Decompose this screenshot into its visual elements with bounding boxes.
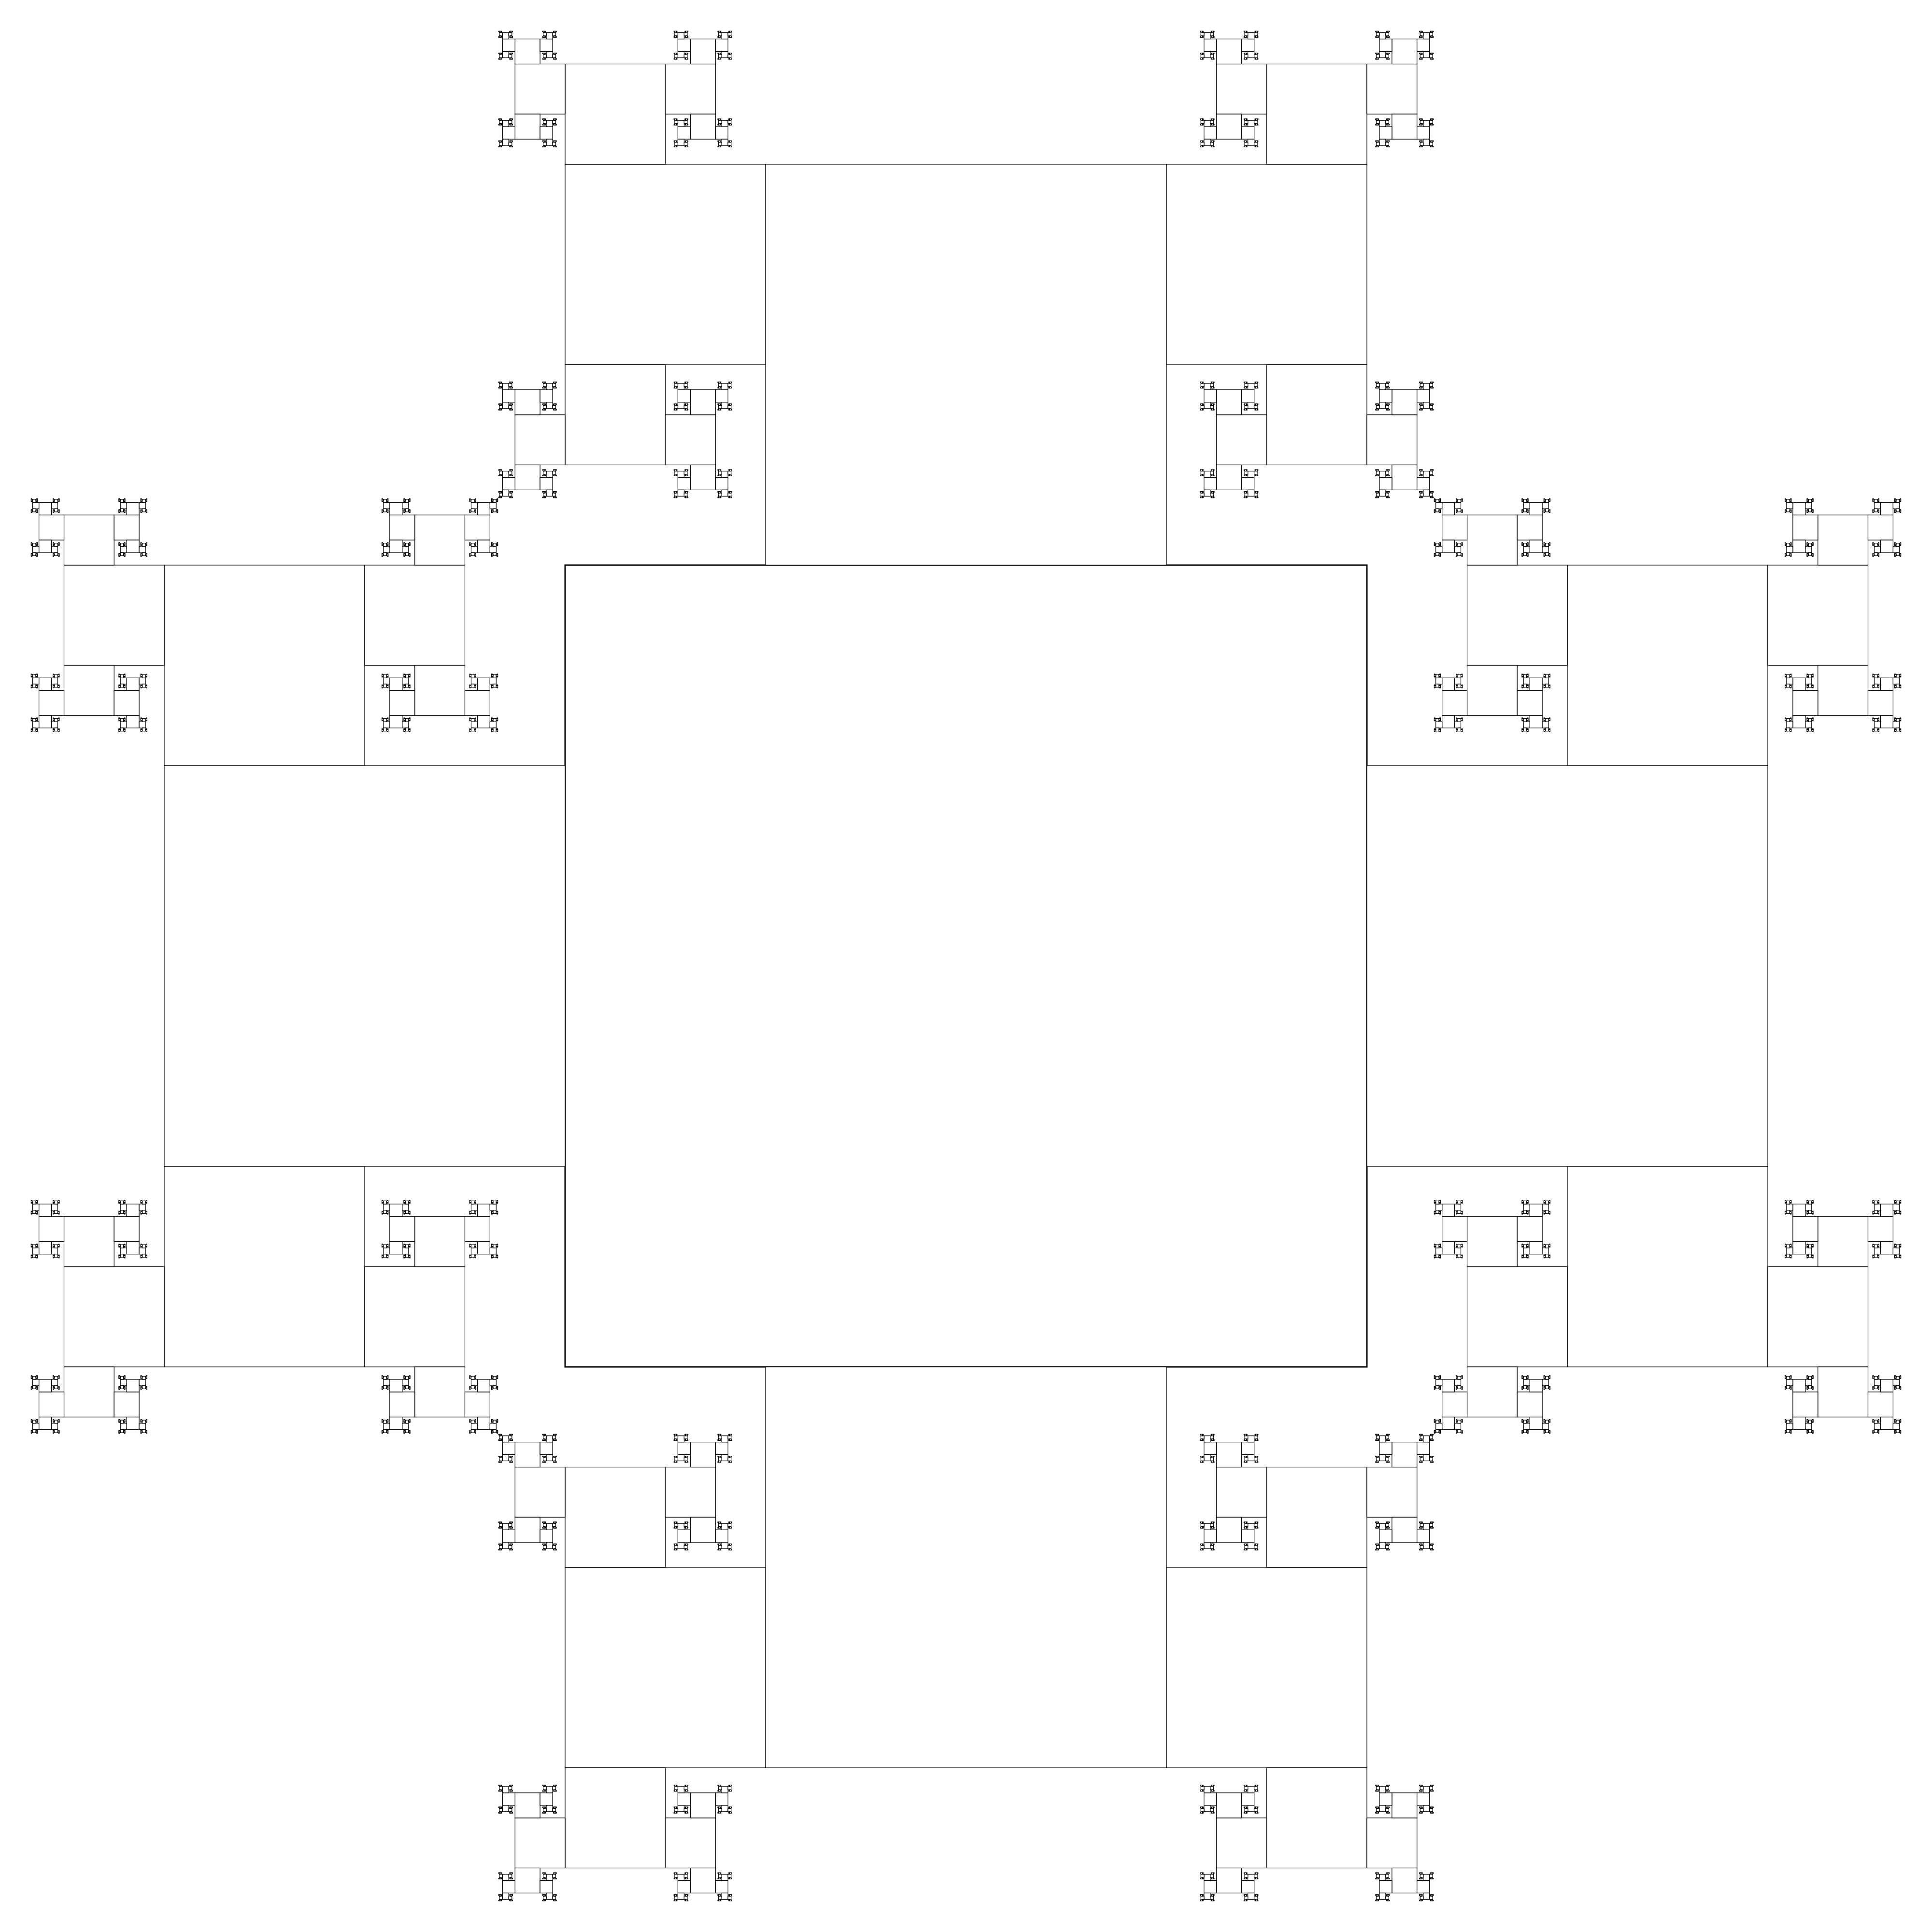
- fractal-square: [1807, 674, 1808, 675]
- fractal-square: [1201, 1896, 1204, 1899]
- fractal-square: [53, 554, 54, 554]
- fractal-square: [387, 718, 388, 719]
- fractal-square: [1211, 1527, 1212, 1528]
- fractal-square: [674, 1456, 675, 1457]
- fractal-square: [1878, 718, 1879, 719]
- fractal-square: [1523, 1201, 1526, 1204]
- fractal-square: [497, 1389, 498, 1390]
- fractal-square: [409, 542, 410, 543]
- fractal-square: [1379, 1542, 1386, 1548]
- fractal-square: [512, 1456, 513, 1457]
- fractal-square: [501, 1873, 502, 1874]
- fractal-square: [1878, 554, 1879, 554]
- fractal-square: [545, 1900, 546, 1901]
- fractal-square: [475, 1430, 476, 1431]
- fractal-square: [1544, 676, 1545, 677]
- fractal-square: [146, 1203, 147, 1204]
- fractal-square: [1544, 1376, 1545, 1377]
- fractal-square: [402, 1248, 409, 1254]
- fractal-square: [384, 719, 386, 722]
- fractal-square: [687, 382, 688, 383]
- fractal-square: [498, 1873, 499, 1874]
- fractal-square: [1787, 1376, 1790, 1379]
- fractal-square: [1389, 1900, 1390, 1901]
- fractal-square: [387, 720, 388, 721]
- fractal-square: [53, 1203, 54, 1204]
- fractal-square: [1895, 1378, 1896, 1379]
- fractal-square: [1433, 1527, 1434, 1528]
- fractal-square: [1423, 52, 1430, 58]
- fractal-square: [382, 676, 383, 677]
- fractal-square: [497, 554, 498, 554]
- fractal-square: [1878, 1255, 1879, 1256]
- fractal-square: [1456, 676, 1457, 677]
- fractal-square: [1248, 120, 1254, 127]
- fractal-square: [1387, 119, 1388, 120]
- fractal-square: [146, 731, 147, 732]
- fractal-square: [164, 1166, 365, 1367]
- fractal-square: [545, 382, 546, 383]
- fractal-square: [1808, 1386, 1811, 1389]
- fractal-square: [1387, 1544, 1388, 1545]
- fractal-square: [1378, 1549, 1379, 1550]
- fractal-square: [146, 510, 147, 511]
- fractal-square: [119, 1246, 120, 1247]
- fractal-square: [684, 1787, 687, 1790]
- fractal-square: [512, 1785, 513, 1786]
- fractal-square: [1204, 1542, 1210, 1548]
- fractal-square: [675, 1896, 678, 1899]
- fractal-square: [1204, 120, 1210, 127]
- fractal-square: [687, 37, 688, 38]
- fractal-square: [1387, 409, 1388, 410]
- fractal-square: [1421, 382, 1422, 383]
- fractal-square: [1436, 1430, 1439, 1433]
- fractal-square: [55, 509, 57, 511]
- fractal-square: [1386, 142, 1389, 145]
- fractal-square: [471, 1423, 477, 1430]
- fractal-square: [31, 542, 32, 543]
- fractal-square: [409, 501, 410, 502]
- fractal-square: [384, 553, 386, 555]
- fractal-square: [1542, 546, 1548, 553]
- fractal-square: [498, 387, 499, 388]
- fractal-square: [554, 1549, 554, 1550]
- fractal-square: [1203, 404, 1204, 405]
- fractal-square: [1462, 720, 1463, 721]
- fractal-square: [685, 1440, 686, 1441]
- fractal-square: [1812, 731, 1813, 732]
- fractal-square: [1200, 409, 1201, 410]
- fractal-square: [676, 469, 677, 470]
- fractal-square: [1420, 382, 1421, 383]
- fractal-square: [540, 39, 553, 52]
- fractal-square: [499, 493, 502, 496]
- fractal-square: [1896, 1376, 1899, 1379]
- fractal-square: [1386, 55, 1389, 57]
- fractal-square: [556, 1544, 557, 1545]
- fractal-square: [1442, 1217, 1467, 1242]
- fractal-square: [1203, 58, 1204, 59]
- fractal-square: [409, 1389, 410, 1390]
- fractal-square: [1430, 53, 1431, 54]
- fractal-square: [1787, 553, 1790, 555]
- fractal-square: [469, 1257, 470, 1258]
- fractal-square: [390, 1242, 402, 1254]
- fractal-square: [1255, 146, 1256, 147]
- fractal-square: [382, 512, 383, 513]
- fractal-square: [142, 728, 145, 731]
- fractal-square: [509, 1546, 511, 1548]
- fractal-square: [685, 1544, 686, 1545]
- fractal-square: [1456, 731, 1457, 732]
- fractal-square: [501, 119, 502, 120]
- fractal-square: [1517, 1392, 1542, 1417]
- fractal-square: [502, 1442, 515, 1455]
- fractal-square: [1245, 1787, 1248, 1790]
- fractal-square: [475, 512, 476, 513]
- fractal-square: [731, 1462, 732, 1463]
- fractal-square: [1201, 55, 1204, 57]
- fractal-square: [384, 684, 386, 687]
- fractal-square: [512, 1807, 513, 1808]
- fractal-square: [1213, 404, 1214, 405]
- fractal-square: [409, 1244, 410, 1245]
- fractal-square: [1456, 554, 1457, 554]
- fractal-square: [141, 729, 142, 730]
- fractal-square: [1378, 1434, 1379, 1435]
- fractal-square: [492, 1387, 493, 1388]
- fractal-square: [142, 1210, 145, 1213]
- fractal-square: [542, 1522, 543, 1523]
- fractal-square: [497, 1203, 498, 1204]
- fractal-square: [1793, 540, 1805, 553]
- fractal-square: [141, 1387, 142, 1388]
- fractal-square: [502, 1523, 509, 1530]
- fractal-square: [1210, 1787, 1213, 1790]
- fractal-square: [1246, 1807, 1247, 1808]
- fractal-square: [1213, 1878, 1214, 1879]
- fractal-square: [475, 1200, 476, 1201]
- fractal-square: [556, 119, 557, 120]
- fractal-square: [142, 684, 145, 687]
- fractal-square: [676, 146, 677, 147]
- fractal-square: [1204, 1442, 1217, 1455]
- fractal-square: [509, 405, 511, 408]
- fractal-square: [127, 540, 139, 553]
- fractal-square: [556, 1873, 557, 1874]
- fractal-square: [1430, 1462, 1431, 1463]
- fractal-square: [119, 1200, 120, 1201]
- fractal-square: [1456, 1421, 1457, 1422]
- fractal-square: [124, 498, 125, 499]
- fractal-square: [546, 52, 553, 58]
- fractal-square: [1522, 1389, 1523, 1390]
- fractal-square: [33, 509, 36, 511]
- fractal-square: [1423, 1787, 1430, 1793]
- fractal-square: [546, 1523, 553, 1530]
- fractal-square: [1254, 384, 1257, 386]
- fractal-square: [1433, 31, 1434, 32]
- fractal-square: [1546, 553, 1548, 555]
- fractal-square: [1217, 415, 1267, 465]
- fractal-square: [1213, 1462, 1214, 1463]
- fractal-square: [64, 666, 114, 716]
- fractal-square: [1255, 1434, 1256, 1435]
- fractal-square: [720, 119, 721, 120]
- fractal-square: [1527, 1244, 1528, 1245]
- fractal-square: [384, 728, 386, 731]
- fractal-square: [719, 471, 722, 474]
- fractal-square: [387, 1433, 388, 1434]
- fractal-square: [1379, 1880, 1392, 1893]
- fractal-square: [720, 1785, 721, 1786]
- fractal-square: [405, 1386, 408, 1389]
- fractal-square: [58, 1257, 59, 1258]
- fractal-square: [1436, 722, 1442, 728]
- fractal-square: [127, 715, 139, 728]
- fractal-square: [1248, 1436, 1254, 1442]
- fractal-square: [1430, 1896, 1433, 1899]
- fractal-square: [728, 384, 731, 386]
- fractal-square: [1203, 37, 1204, 38]
- fractal-square: [1873, 1433, 1874, 1434]
- fractal-square: [1430, 405, 1433, 408]
- fractal-square: [675, 384, 678, 386]
- fractal-square: [502, 471, 509, 477]
- fractal-square: [127, 1417, 139, 1430]
- fractal-square: [1544, 1246, 1545, 1247]
- fractal-square: [1896, 553, 1899, 555]
- fractal-square: [676, 1873, 677, 1874]
- fractal-square: [1462, 501, 1463, 502]
- fractal-square: [720, 58, 721, 59]
- fractal-square: [1544, 729, 1545, 730]
- fractal-square: [1367, 1467, 1417, 1518]
- fractal-square: [1392, 39, 1417, 64]
- fractal-square: [31, 1203, 32, 1204]
- fractal-square: [119, 498, 120, 499]
- fractal-square: [1462, 1433, 1463, 1434]
- fractal-square: [124, 1387, 125, 1388]
- fractal-square: [556, 382, 557, 383]
- fractal-square: [545, 1456, 546, 1457]
- fractal-square: [33, 1254, 36, 1257]
- fractal-square: [1244, 1895, 1245, 1896]
- fractal-square: [53, 1378, 54, 1379]
- fractal-square: [384, 1254, 386, 1257]
- fractal-square: [492, 1420, 493, 1421]
- fractal-square: [469, 512, 470, 513]
- fractal-square: [475, 1389, 476, 1390]
- fractal-square: [119, 510, 120, 511]
- fractal-square: [676, 475, 677, 476]
- fractal-square: [119, 1378, 120, 1379]
- fractal-square: [471, 1204, 477, 1210]
- fractal-square: [545, 469, 546, 470]
- fractal-square: [1440, 510, 1441, 511]
- fractal-square: [1455, 1423, 1461, 1430]
- fractal-square: [58, 1213, 59, 1214]
- fractal-square: [1204, 402, 1210, 409]
- fractal-square: [501, 58, 502, 59]
- fractal-square: [1420, 120, 1423, 123]
- fractal-square: [146, 720, 147, 721]
- fractal-square: [1895, 720, 1896, 721]
- fractal-square: [676, 409, 677, 410]
- fractal-square: [545, 119, 546, 120]
- fractal-square: [676, 1522, 677, 1523]
- fractal-square: [1430, 1785, 1431, 1786]
- fractal-square: [720, 1895, 721, 1896]
- fractal-square: [498, 475, 499, 476]
- fractal-square: [1211, 1807, 1212, 1808]
- fractal-square: [1213, 1790, 1214, 1791]
- fractal-square: [554, 37, 554, 38]
- fractal-square: [1527, 1203, 1528, 1204]
- fractal-square: [1895, 510, 1896, 511]
- fractal-square: [1211, 382, 1212, 383]
- fractal-square: [1367, 1818, 1417, 1868]
- fractal-square: [114, 1217, 139, 1242]
- fractal-square: [1420, 1896, 1423, 1899]
- fractal-square: [509, 55, 511, 57]
- fractal-square: [1880, 1417, 1893, 1430]
- fractal-square: [542, 141, 543, 142]
- fractal-square: [31, 1389, 32, 1390]
- fractal-square: [146, 676, 147, 677]
- fractal-square: [498, 1785, 499, 1786]
- fractal-square: [1379, 39, 1392, 52]
- fractal-square: [1203, 1812, 1204, 1813]
- fractal-square: [542, 1785, 543, 1786]
- fractal-square: [124, 510, 125, 511]
- fractal-square: [1434, 501, 1435, 502]
- fractal-square: [387, 1421, 388, 1422]
- fractal-square: [1805, 1379, 1812, 1386]
- fractal-square: [1420, 1522, 1421, 1523]
- fractal-square: [1873, 731, 1874, 732]
- fractal-square: [1467, 1367, 1518, 1417]
- fractal-square: [1245, 1808, 1248, 1811]
- fractal-square: [1873, 1378, 1874, 1379]
- fractal-square: [387, 1246, 388, 1247]
- fractal-square: [1389, 37, 1390, 38]
- fractal-square: [409, 1255, 410, 1256]
- fractal-square: [542, 58, 543, 59]
- fractal-square: [142, 1420, 145, 1423]
- fractal-square: [1785, 1257, 1786, 1258]
- fractal-square: [1433, 492, 1434, 493]
- fractal-square: [1785, 1244, 1786, 1245]
- fractal-square: [1430, 1807, 1431, 1808]
- fractal-square: [1880, 502, 1893, 515]
- fractal-square: [1873, 556, 1874, 557]
- fractal-square: [146, 687, 147, 688]
- fractal-square: [37, 545, 38, 546]
- fractal-square: [685, 1878, 686, 1879]
- fractal-square: [37, 685, 38, 686]
- fractal-square: [545, 141, 546, 142]
- fractal-square: [719, 1546, 722, 1548]
- fractal-square: [409, 674, 410, 675]
- fractal-square: [1386, 384, 1389, 386]
- fractal-square: [1420, 404, 1421, 405]
- fractal-square: [124, 1255, 125, 1256]
- fractal-square: [382, 685, 383, 686]
- fractal-square: [1378, 1873, 1379, 1874]
- fractal-square: [1389, 387, 1390, 388]
- fractal-square: [1378, 1522, 1379, 1523]
- fractal-square: [1246, 1878, 1247, 1879]
- fractal-square: [1462, 1244, 1463, 1245]
- fractal-square: [553, 1874, 555, 1877]
- fractal-square: [687, 1434, 688, 1435]
- fractal-square: [1807, 676, 1808, 677]
- fractal-square: [58, 1421, 59, 1422]
- fractal-square: [1378, 1544, 1379, 1545]
- fractal-square: [687, 124, 688, 125]
- fractal-square: [1213, 409, 1214, 410]
- fractal-square: [1217, 64, 1267, 114]
- fractal-square: [1436, 1254, 1439, 1257]
- fractal-square: [1812, 1433, 1813, 1434]
- fractal-square: [1420, 1878, 1421, 1879]
- fractal-square: [114, 1392, 139, 1417]
- fractal-square: [540, 1793, 553, 1805]
- fractal-square: [1430, 120, 1433, 123]
- fractal-square: [475, 720, 476, 721]
- fractal-square: [1430, 382, 1431, 383]
- fractal-square: [501, 146, 502, 147]
- fractal-square: [1376, 497, 1377, 498]
- fractal-square: [1522, 1376, 1523, 1377]
- fractal-square: [728, 1523, 731, 1526]
- fractal-square: [1257, 1807, 1258, 1808]
- fractal-square: [1440, 1420, 1441, 1421]
- fractal-square: [141, 1389, 142, 1390]
- fractal-square: [1874, 1245, 1877, 1248]
- fractal-square: [498, 146, 499, 147]
- fractal-square: [127, 1204, 139, 1217]
- fractal-square: [1434, 729, 1435, 730]
- fractal-square: [731, 492, 732, 493]
- fractal-square: [674, 469, 675, 470]
- fractal-square: [722, 402, 728, 409]
- fractal-square: [728, 120, 731, 123]
- fractal-square: [1436, 1248, 1442, 1254]
- fractal-square: [1873, 1255, 1874, 1256]
- fractal-square: [1896, 728, 1899, 731]
- fractal-square: [382, 554, 383, 554]
- fractal-square: [1430, 1900, 1431, 1901]
- fractal-square: [718, 1544, 719, 1545]
- fractal-square: [1386, 1458, 1389, 1461]
- fractal-square: [492, 1378, 493, 1379]
- fractal-square: [1790, 718, 1791, 719]
- fractal-square: [1257, 141, 1258, 142]
- fractal-square: [1434, 1387, 1435, 1388]
- fractal-square: [498, 58, 499, 59]
- fractal-square: [1544, 1387, 1545, 1388]
- fractal-square: [55, 1420, 57, 1423]
- fractal-square: [405, 719, 408, 722]
- fractal-square: [1204, 1805, 1210, 1812]
- fractal-square: [510, 1785, 511, 1786]
- fractal-square: [404, 1211, 405, 1212]
- fractal-square: [502, 33, 509, 39]
- fractal-square: [1434, 731, 1435, 732]
